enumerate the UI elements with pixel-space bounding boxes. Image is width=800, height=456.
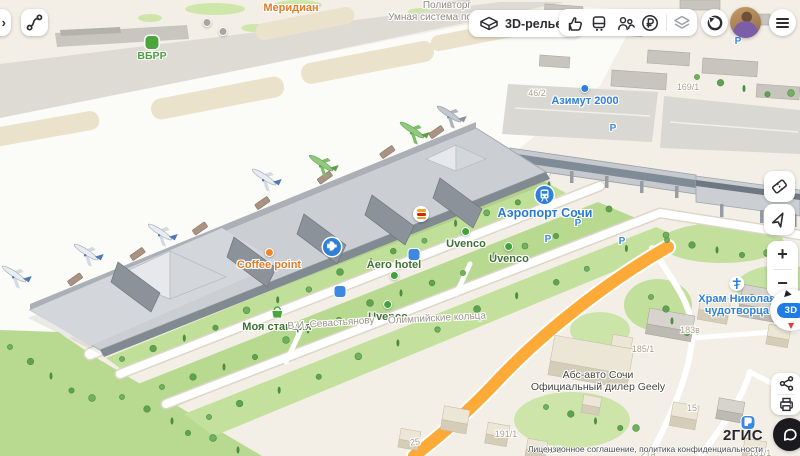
parking-letter[interactable]: P xyxy=(610,123,617,134)
map-label-text: 25 xyxy=(409,436,420,447)
bank-icon xyxy=(145,36,158,49)
map-label-text: P xyxy=(575,218,582,229)
map-label-text: 15 xyxy=(687,403,697,413)
map-label-text: Азимут 2000 xyxy=(551,95,618,107)
map-label-text: чудотворца xyxy=(705,305,769,317)
map-label-text: Меридиан xyxy=(263,2,318,14)
label-aero-hotel[interactable]: Aero hotel xyxy=(367,259,421,282)
expand-panel-button[interactable]: › xyxy=(0,9,11,36)
print-button[interactable] xyxy=(771,395,800,416)
map-label-text: 183в xyxy=(680,325,700,335)
share-print-control xyxy=(771,373,800,415)
label-airport-sochi[interactable]: Аэропорт Сочи xyxy=(498,186,593,220)
bk-icon xyxy=(413,206,429,222)
train-icon xyxy=(536,186,554,204)
busstop-icon xyxy=(409,249,420,260)
friends-icon[interactable] xyxy=(615,13,635,33)
map-label-text: 191/1 xyxy=(495,429,518,439)
map-canvas[interactable] xyxy=(0,0,800,456)
graycircle-icon xyxy=(203,18,212,27)
2gis-logo[interactable]: 2ГИС xyxy=(528,427,763,444)
bluedot-icon xyxy=(581,84,590,93)
pill-divider xyxy=(666,14,667,31)
greendot-icon xyxy=(390,271,399,280)
map-label-text: P xyxy=(610,123,617,134)
map-label-text: Uvenco xyxy=(446,238,486,250)
plus-icon: + xyxy=(777,244,788,265)
graycircle-icon xyxy=(219,27,228,36)
ruble-payments-icon[interactable] xyxy=(640,13,660,33)
route-icon xyxy=(25,13,44,32)
map-label-text: Официальный дилер Geely xyxy=(531,382,665,394)
label-vbrr[interactable]: ВБРР xyxy=(137,36,166,63)
basket-icon xyxy=(270,306,284,319)
label-meridian[interactable]: Меридиан xyxy=(263,2,318,14)
map-label-text: Умная система по xyxy=(388,12,472,23)
chevron-right-icon: › xyxy=(2,15,6,30)
map-label-text: Coffee point xyxy=(237,259,301,271)
map-label: 183в xyxy=(680,325,700,335)
map-label-text: Храм Николая xyxy=(698,293,775,305)
label-uvenco-2[interactable]: Uvenco xyxy=(489,242,529,265)
planebadge-icon: ✈ xyxy=(323,238,341,256)
map-app: МеридианПоливторгУмная система поВБРРАзи… xyxy=(0,0,800,456)
map-label-text: Абс-авто Сочи xyxy=(563,370,634,382)
cross-icon xyxy=(730,276,745,291)
map-label-text: 169/1 xyxy=(677,82,700,92)
airport-marker[interactable]: ✈ xyxy=(323,238,341,258)
zoom-in-button[interactable]: + xyxy=(767,241,798,269)
map-label-text: Uvenco xyxy=(489,253,529,265)
directions-button[interactable] xyxy=(21,9,48,36)
map-label: 46/2 xyxy=(528,88,546,98)
parking-letter[interactable]: P xyxy=(735,36,742,47)
map-label-text: P xyxy=(619,236,626,247)
poi-dot[interactable] xyxy=(203,18,212,29)
map-label: 191/1 xyxy=(495,429,518,439)
quick-services-pill xyxy=(559,9,697,36)
map-footer: 2ГИС Лицензионное соглашение, политика к… xyxy=(528,427,763,454)
parking-letter[interactable]: P xyxy=(545,234,552,245)
map-label: 185/1 xyxy=(632,344,655,354)
locate-button[interactable] xyxy=(764,204,795,235)
label-umnaya-sistema: Умная система по xyxy=(388,12,472,23)
map-label-text: P xyxy=(545,234,552,245)
license-links[interactable]: Лицензионное соглашение, политика конфид… xyxy=(528,444,763,454)
bus-stop-marker[interactable] xyxy=(409,249,420,262)
taxi-hand-icon[interactable] xyxy=(564,13,584,33)
greendot-icon xyxy=(384,300,393,309)
map-label-text: 46/2 xyxy=(528,88,546,98)
speech-bubble-icon xyxy=(781,426,799,444)
south-needle-icon xyxy=(788,323,794,329)
transport-bus-icon[interactable] xyxy=(589,13,609,33)
label-coffee-point[interactable]: Coffee point xyxy=(237,248,301,271)
compass-button[interactable] xyxy=(701,9,728,36)
busstop-icon xyxy=(335,286,346,297)
hamburger-icon xyxy=(776,22,789,24)
map-label-text: 185/1 xyxy=(632,344,655,354)
orangedot-icon xyxy=(264,248,273,257)
label-azimut-2000[interactable]: Азимут 2000 xyxy=(551,84,618,107)
parking-letter[interactable]: P xyxy=(619,236,626,247)
map-label: 15 xyxy=(687,403,697,413)
label-polivtorg: Поливторг xyxy=(423,0,471,11)
terrain-3d-icon xyxy=(479,15,499,32)
map-label-text: P xyxy=(735,36,742,47)
share-icon xyxy=(778,375,795,392)
label-uvenco-1[interactable]: Uvenco xyxy=(446,227,486,250)
bus-stop-marker[interactable] xyxy=(335,286,346,299)
poi-dot[interactable] xyxy=(219,27,228,38)
share-button[interactable] xyxy=(771,373,800,394)
north-needle-icon xyxy=(782,289,791,297)
parking-letter[interactable]: P xyxy=(575,218,582,229)
navigation-arrow-icon xyxy=(770,210,789,229)
map-label: 169/1 xyxy=(677,82,700,92)
compass-icon xyxy=(706,14,724,32)
burger-king-marker[interactable] xyxy=(413,206,429,224)
chat-button[interactable] xyxy=(773,418,800,451)
menu-button[interactable] xyxy=(769,9,796,36)
ticket-icon xyxy=(770,177,789,196)
user-avatar[interactable] xyxy=(730,7,761,38)
map-label-text: Поливторг xyxy=(423,0,471,11)
label-hram-nikolaya[interactable]: Храм Николаячудотворца xyxy=(698,276,775,318)
map-label: 25 xyxy=(409,436,420,447)
map-label-text: ВБРР xyxy=(137,51,166,63)
label-abs-auto-geely[interactable]: Абс-авто СочиОфициальный дилер Geely xyxy=(531,368,665,394)
mode-3d-badge[interactable]: 3D xyxy=(777,303,800,318)
greendot-icon xyxy=(462,227,471,236)
layers-icon[interactable] xyxy=(672,13,692,33)
greendot-icon xyxy=(505,242,514,251)
tickets-button[interactable] xyxy=(764,171,795,202)
print-icon xyxy=(778,396,795,413)
